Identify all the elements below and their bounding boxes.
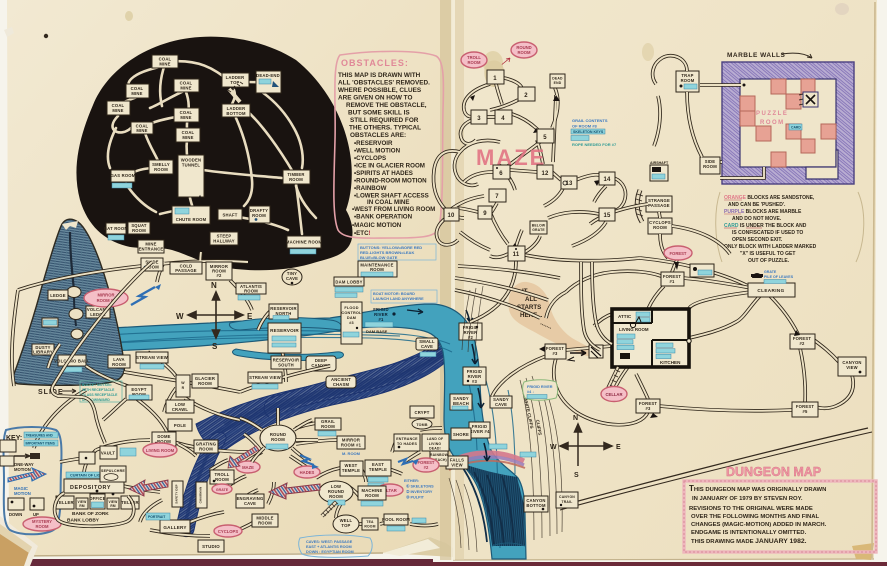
svg-text:ROOM: ROOM xyxy=(35,524,49,529)
svg-text:DEAD: DEAD xyxy=(552,77,563,81)
svg-text:MACHINE ROOM: MACHINE ROOM xyxy=(286,240,322,245)
svg-text:ROOM: ROOM xyxy=(370,267,384,272)
svg-text:TELLER: TELLER xyxy=(56,500,73,505)
svg-text:CAVE: CAVE xyxy=(421,344,433,349)
svg-text:GRAIL CONTENTS: GRAIL CONTENTS xyxy=(572,118,608,123)
svg-text:IS CONFISCATED IF USED TO: IS CONFISCATED IF USED TO xyxy=(732,230,803,236)
svg-text:ONLY BLOCK WITH LADDER MARKED: ONLY BLOCK WITH LADDER MARKED xyxy=(724,244,817,250)
svg-text:MINE: MINE xyxy=(136,128,147,133)
svg-text:•RAINBOW: •RAINBOW xyxy=(354,185,387,192)
svg-text:•ROUND-ROOM MOTION: •ROUND-ROOM MOTION xyxy=(354,178,427,185)
svg-text:BANK LOBBY: BANK LOBBY xyxy=(67,518,100,524)
svg-text:BELOW: BELOW xyxy=(532,224,546,228)
svg-text:•ETC!: •ETC! xyxy=(354,230,371,237)
svg-text:TOMB: TOMB xyxy=(416,423,428,427)
svg-text:BOTTOM: BOTTOM xyxy=(226,111,246,116)
svg-text:SHORE: SHORE xyxy=(453,432,469,437)
svg-text:CELLAR: CELLAR xyxy=(606,392,623,397)
svg-text:ROOM: ROOM xyxy=(467,60,481,65)
svg-text:E: E xyxy=(247,312,253,321)
svg-text:EAST + ATLANTIS ROOM: EAST + ATLANTIS ROOM xyxy=(306,545,352,549)
svg-text:ROOM: ROOM xyxy=(252,213,266,218)
svg-text:DEAD-END: DEAD-END xyxy=(256,73,280,78)
svg-text:BOAT MOTOR: BOARD: BOAT MOTOR: BOARD xyxy=(373,292,415,296)
svg-text:MAZE: MAZE xyxy=(242,465,254,470)
svg-text:N: N xyxy=(211,281,217,290)
svg-text:KITCHEN: KITCHEN xyxy=(660,360,681,365)
svg-text:MAZE: MAZE xyxy=(476,145,546,170)
svg-text:•WEST FROM LIVING ROOM: •WEST FROM LIVING ROOM xyxy=(352,206,435,213)
svg-text:N: N xyxy=(573,415,578,422)
svg-text:OFFICE: OFFICE xyxy=(89,496,106,501)
svg-text:•WELL MOTION: •WELL MOTION xyxy=(354,148,401,155)
svg-text:BLUE=BLOW GATE: BLUE=BLOW GATE xyxy=(360,255,398,260)
svg-text:ROOM: ROOM xyxy=(215,477,229,482)
svg-text:TREASURES AND: TREASURES AND xyxy=(26,434,54,438)
svg-text:DAM BASE: DAM BASE xyxy=(366,329,388,334)
svg-text:#2: #2 xyxy=(799,341,805,346)
svg-text:6: 6 xyxy=(499,171,503,177)
svg-text:W: W xyxy=(550,444,557,451)
svg-text:•RESERVOIR: •RESERVOIR xyxy=(354,140,393,147)
svg-text:DEPOSITORY: DEPOSITORY xyxy=(70,485,111,491)
svg-text:EITHER:: EITHER: xyxy=(404,479,419,483)
svg-text:9: 9 xyxy=(483,211,487,217)
svg-text:#3: #3 xyxy=(349,321,354,325)
svg-text:HADES: HADES xyxy=(300,470,315,475)
svg-text:IN JANUARY OF 1979 BY STEVEN R: IN JANUARY OF 1979 BY STEVEN ROY. xyxy=(692,496,803,502)
svg-text:CHAIRMAN: CHAIRMAN xyxy=(199,487,203,504)
svg-text:SKELETON KEYS: SKELETON KEYS xyxy=(573,130,604,134)
svg-text:CYCLOPS: CYCLOPS xyxy=(218,529,238,534)
svg-text:BOTTOM: BOTTOM xyxy=(526,503,546,508)
svg-text:THE OTHERS. TYPICAL: THE OTHERS. TYPICAL xyxy=(349,125,421,132)
svg-text:CRYPT: CRYPT xyxy=(414,410,429,415)
svg-text:RIVER #4: RIVER #4 xyxy=(469,429,490,434)
svg-text:TEA: TEA xyxy=(366,520,374,524)
svg-text:#5: #5 xyxy=(802,409,808,414)
svg-text:ROOM: ROOM xyxy=(703,164,717,169)
svg-text:LIVING ROOM: LIVING ROOM xyxy=(146,448,175,453)
svg-text:MINE: MINE xyxy=(131,91,142,96)
svg-text:MINE: MINE xyxy=(159,62,170,67)
svg-text:CAVE: CAVE xyxy=(495,402,507,407)
svg-text:HALLWAY: HALLWAY xyxy=(213,239,235,244)
svg-text:GRATE: GRATE xyxy=(764,270,777,274)
svg-text:ROOM: ROOM xyxy=(271,437,285,442)
svg-text:CANYON: CANYON xyxy=(559,495,575,499)
svg-text:#3: #3 xyxy=(472,379,478,384)
svg-text:ATTIC: ATTIC xyxy=(618,314,632,319)
svg-text:ROOM: ROOM xyxy=(329,494,343,499)
svg-text:STILL REQUIRED FOR: STILL REQUIRED FOR xyxy=(350,117,419,124)
svg-text:BEACH: BEACH xyxy=(453,401,469,406)
svg-text:DOWN: DOWN xyxy=(9,512,22,517)
svg-text:MIRROR: MIRROR xyxy=(98,293,115,298)
svg-text:FOREST: FOREST xyxy=(670,251,687,256)
svg-text:PUZZLE: PUZZLE xyxy=(756,111,788,117)
svg-text:ROOM: ROOM xyxy=(258,521,272,526)
svg-text:STUDIO: STUDIO xyxy=(202,544,220,549)
svg-text:RESERVOIR: RESERVOIR xyxy=(270,328,299,333)
svg-text:RAINBOW: RAINBOW xyxy=(430,453,449,457)
svg-text:WITH RECEPTACLE: WITH RECEPTACLE xyxy=(82,388,115,392)
svg-text:ENDGAME IS INTENTIONALLY OMITT: ENDGAME IS INTENTIONALLY OMITTED. xyxy=(691,530,807,536)
svg-text:12: 12 xyxy=(541,171,549,177)
svg-text:15: 15 xyxy=(603,213,611,219)
svg-text:OBSTACLES:: OBSTACLES: xyxy=(341,58,409,68)
svg-text:CLEARING: CLEARING xyxy=(757,288,784,293)
svg-text:CAVE: CAVE xyxy=(244,501,256,506)
svg-text:#4 ↓: #4 ↓ xyxy=(527,390,534,394)
svg-text:VIEW: VIEW xyxy=(451,463,463,468)
svg-text:ROOM: ROOM xyxy=(681,78,695,83)
svg-text:RM: RM xyxy=(110,504,116,508)
svg-text:CHANGES (MAGIC-MOTION) ADDED I: CHANGES (MAGIC-MOTION) ADDED IN MARCH. xyxy=(691,522,827,528)
svg-text:ROOM: ROOM xyxy=(653,225,667,230)
svg-text:MINE: MINE xyxy=(180,115,191,120)
svg-text:ROOM: ROOM xyxy=(365,493,379,498)
svg-text:TRAIL: TRAIL xyxy=(562,500,573,504)
svg-text:TO HADES: TO HADES xyxy=(397,442,418,446)
svg-text:DAM: DAM xyxy=(347,316,356,320)
svg-text:ROOM: ROOM xyxy=(364,525,375,529)
svg-text:WHERE POSSIBLE, CLUES: WHERE POSSIBLE, CLUES xyxy=(338,87,422,94)
svg-text:ROPE NEEDED FOR #7: ROPE NEEDED FOR #7 xyxy=(572,142,617,147)
svg-text:REVISIONS TO THE ORIGINAL WERE: REVISIONS TO THE ORIGINAL WERE MADE xyxy=(689,506,813,512)
svg-text:DOWN : EGYPTIAN ROOM: DOWN : EGYPTIAN ROOM xyxy=(306,550,354,554)
svg-text:ROOM #1: ROOM #1 xyxy=(341,443,362,448)
svg-text:POLE: POLE xyxy=(174,423,186,428)
svg-text:LEDGE: LEDGE xyxy=(50,293,65,298)
svg-text:LAUNCH LAND ANYWHERE: LAUNCH LAND ANYWHERE xyxy=(373,297,424,301)
svg-text:ROOM: ROOM xyxy=(321,424,335,429)
svg-text:CAVES: WEST: PASSAGE: CAVES: WEST: PASSAGE xyxy=(306,540,353,544)
svg-text:PORTRAIT: PORTRAIT xyxy=(148,515,166,519)
svg-text:3: 3 xyxy=(477,116,481,122)
svg-text:THIS MAP IS DRAWN WITH: THIS MAP IS DRAWN WITH xyxy=(338,72,421,79)
svg-text:"X" IS USEFUL TO GET: "X" IS USEFUL TO GET xyxy=(740,251,795,257)
svg-text:#1: #1 xyxy=(669,279,675,284)
svg-text:END: END xyxy=(554,81,562,85)
svg-text:ROOM: ROOM xyxy=(198,381,212,386)
svg-text:TOP: TOP xyxy=(230,80,239,85)
svg-text:S: S xyxy=(212,342,218,351)
svg-text:14: 14 xyxy=(603,177,611,183)
svg-text:① SKELETONS: ① SKELETONS xyxy=(406,484,434,489)
svg-text:REMOVE THE OBSTACLE,: REMOVE THE OBSTACLE, xyxy=(346,102,427,109)
svg-text:SOUTH: SOUTH xyxy=(278,363,294,368)
svg-text:10: 10 xyxy=(447,213,455,219)
svg-text:M. ROOM: M. ROOM xyxy=(342,451,361,456)
svg-text:TEMPLE: TEMPLE xyxy=(369,467,387,472)
svg-text:ROOM: ROOM xyxy=(244,289,258,294)
svg-text:CAVE: CAVE xyxy=(286,276,298,281)
svg-text:RM: RM xyxy=(79,504,85,508)
svg-text:MINE: MINE xyxy=(182,135,193,140)
svg-text:7: 7 xyxy=(495,194,499,200)
svg-text:1: 1 xyxy=(493,76,497,82)
svg-text:AND CAN BE 'PUSHED'.: AND CAN BE 'PUSHED'. xyxy=(728,202,786,208)
svg-text:•CYCLOPS: •CYCLOPS xyxy=(354,155,386,162)
svg-text:TEMPLE: TEMPLE xyxy=(342,468,360,473)
svg-text:ARE GIVEN ON HOW TO: ARE GIVEN ON HOW TO xyxy=(338,95,412,102)
svg-text:IN COAL MINE: IN COAL MINE xyxy=(367,199,410,206)
svg-text:LIVING: LIVING xyxy=(429,442,442,446)
svg-text:MOTION: MOTION xyxy=(14,467,31,472)
svg-text:TOP: TOP xyxy=(341,523,350,528)
svg-text:ROOM: ROOM xyxy=(112,362,126,367)
svg-text:BAT ROOM: BAT ROOM xyxy=(104,226,128,231)
svg-text:FLOOD: FLOOD xyxy=(344,306,358,310)
svg-text:CONTROL: CONTROL xyxy=(341,311,362,315)
svg-text:② INVENTORY: ② INVENTORY xyxy=(406,489,433,494)
svg-text:2: 2 xyxy=(524,93,528,99)
svg-text:VIEW: VIEW xyxy=(846,365,858,370)
svg-text:BUCKET MOTION:: BUCKET MOTION: xyxy=(82,383,112,387)
svg-text:•ICE IN GLACIER ROOM: •ICE IN GLACIER ROOM xyxy=(354,163,425,170)
svg-text:POOL ROOM: POOL ROOM xyxy=(382,517,410,522)
svg-text:GAS ROOM: GAS ROOM xyxy=(111,173,136,178)
svg-text:BUT SOME SKILL IS: BUT SOME SKILL IS xyxy=(348,110,410,117)
svg-text:#1: #1 xyxy=(378,317,384,322)
svg-text:MOTION: MOTION xyxy=(14,491,31,496)
svg-text:CHUTE ROOM: CHUTE ROOM xyxy=(176,217,207,222)
svg-text:5: 5 xyxy=(543,135,547,141)
svg-text:OPEN SECOND EXIT.: OPEN SECOND EXIT. xyxy=(732,237,783,243)
svg-text:THIS DRAWING MADE JANUARY 1982: THIS DRAWING MADE JANUARY 1982. xyxy=(691,538,807,545)
svg-text:FRIGID RIVER: FRIGID RIVER xyxy=(527,385,553,389)
svg-text:VOLCANO BALL: VOLCANO BALL xyxy=(54,359,90,364)
svg-text:MINE: MINE xyxy=(112,108,123,113)
svg-text:ENTRANCE: ENTRANCE xyxy=(396,437,418,441)
svg-text:TUNNEL: TUNNEL xyxy=(182,163,200,168)
svg-text:•MAGIC MOTION: •MAGIC MOTION xyxy=(352,222,402,229)
svg-text:•BANK OPERATION: •BANK OPERATION xyxy=(354,214,413,221)
svg-text:BANK OF ZORK: BANK OF ZORK xyxy=(72,511,109,517)
svg-text:CHASM: CHASM xyxy=(333,382,350,387)
svg-text:4: 4 xyxy=(501,116,505,122)
svg-text:DUNGEON MAP: DUNGEON MAP xyxy=(726,465,821,479)
svg-text:ROOM: ROOM xyxy=(760,120,785,126)
svg-text:SHAFT: SHAFT xyxy=(223,213,238,218)
svg-text:SAFETY DEP: SAFETY DEP xyxy=(175,484,179,504)
svg-text:CRAWL: CRAWL xyxy=(172,407,189,412)
svg-text:MARBLE WALLS: MARBLE WALLS xyxy=(727,52,786,59)
svg-text:LAND OF: LAND OF xyxy=(427,437,443,441)
svg-text:OUT OF PUZZLE.: OUT OF PUZZLE. xyxy=(748,258,790,264)
svg-text:ENTRANCE: ENTRANCE xyxy=(139,247,164,252)
svg-text:GRATE: GRATE xyxy=(532,228,545,232)
svg-text:PASSAGE: PASSAGE xyxy=(648,203,670,208)
svg-text:R: R xyxy=(182,386,185,390)
svg-text:•SPIRITS AT HADES: •SPIRITS AT HADES xyxy=(354,170,413,177)
svg-text:CARD: CARD xyxy=(791,126,801,130)
svg-text:PASSAGE: PASSAGE xyxy=(175,268,197,273)
svg-text:IMPORTANT ITEMS: IMPORTANT ITEMS xyxy=(26,442,55,446)
svg-text:MINE: MINE xyxy=(180,86,191,91)
svg-text:ROOM: ROOM xyxy=(199,447,213,452)
svg-text:UP: UP xyxy=(33,512,39,517)
svg-text:STREAM VIEW: STREAM VIEW xyxy=(136,355,168,360)
svg-text:ALL 'OBSTACLES' REMOVED.: ALL 'OBSTACLES' REMOVED. xyxy=(338,80,430,87)
svg-text:ROOM: ROOM xyxy=(154,167,168,172)
svg-text:#2: #2 xyxy=(216,273,222,278)
svg-text:DEAD!: DEAD! xyxy=(429,447,441,451)
svg-text:OVER THE FOLLOWING MONTHS AND: OVER THE FOLLOWING MONTHS AND FINAL xyxy=(691,514,819,520)
svg-text:LIBRARY: LIBRARY xyxy=(33,350,53,355)
svg-text:W: W xyxy=(176,312,184,321)
svg-text:E: E xyxy=(616,444,621,451)
svg-text:SEPULCHRE: SEPULCHRE xyxy=(101,469,125,473)
svg-text:#3: #3 xyxy=(552,351,558,356)
svg-text:GRATE: GRATE xyxy=(216,488,229,492)
svg-text:VAULT: VAULT xyxy=(101,451,116,456)
svg-text:ROOM: ROOM xyxy=(132,228,146,233)
svg-text:GLASS RECEPTACLE: GLASS RECEPTACLE xyxy=(82,393,118,397)
svg-text:OBSTACLES ARE:: OBSTACLES ARE: xyxy=(350,132,406,139)
svg-text:AIRSHAFT: AIRSHAFT xyxy=(650,161,669,165)
svg-text:#3: #3 xyxy=(645,406,651,411)
svg-text:STREAM VIEW: STREAM VIEW xyxy=(249,375,281,380)
svg-text:AND DO NOT MOVE.: AND DO NOT MOVE. xyxy=(732,216,782,222)
svg-text:PILE OF LEAVES: PILE OF LEAVES xyxy=(764,275,794,279)
svg-text:DAM LOBBY: DAM LOBBY xyxy=(335,280,362,285)
svg-text:OF ROOM #8: OF ROOM #8 xyxy=(572,124,597,129)
svg-text:ROOM: ROOM xyxy=(517,50,531,55)
svg-text:#2: #2 xyxy=(424,465,429,470)
svg-text:W: W xyxy=(181,381,185,385)
svg-text:③ PULPIT: ③ PULPIT xyxy=(406,495,425,500)
svg-text:S: S xyxy=(574,472,579,479)
svg-text:11: 11 xyxy=(513,252,520,258)
svg-text:GALLERY: GALLERY xyxy=(163,525,186,530)
svg-text:ROOM: ROOM xyxy=(289,177,303,182)
